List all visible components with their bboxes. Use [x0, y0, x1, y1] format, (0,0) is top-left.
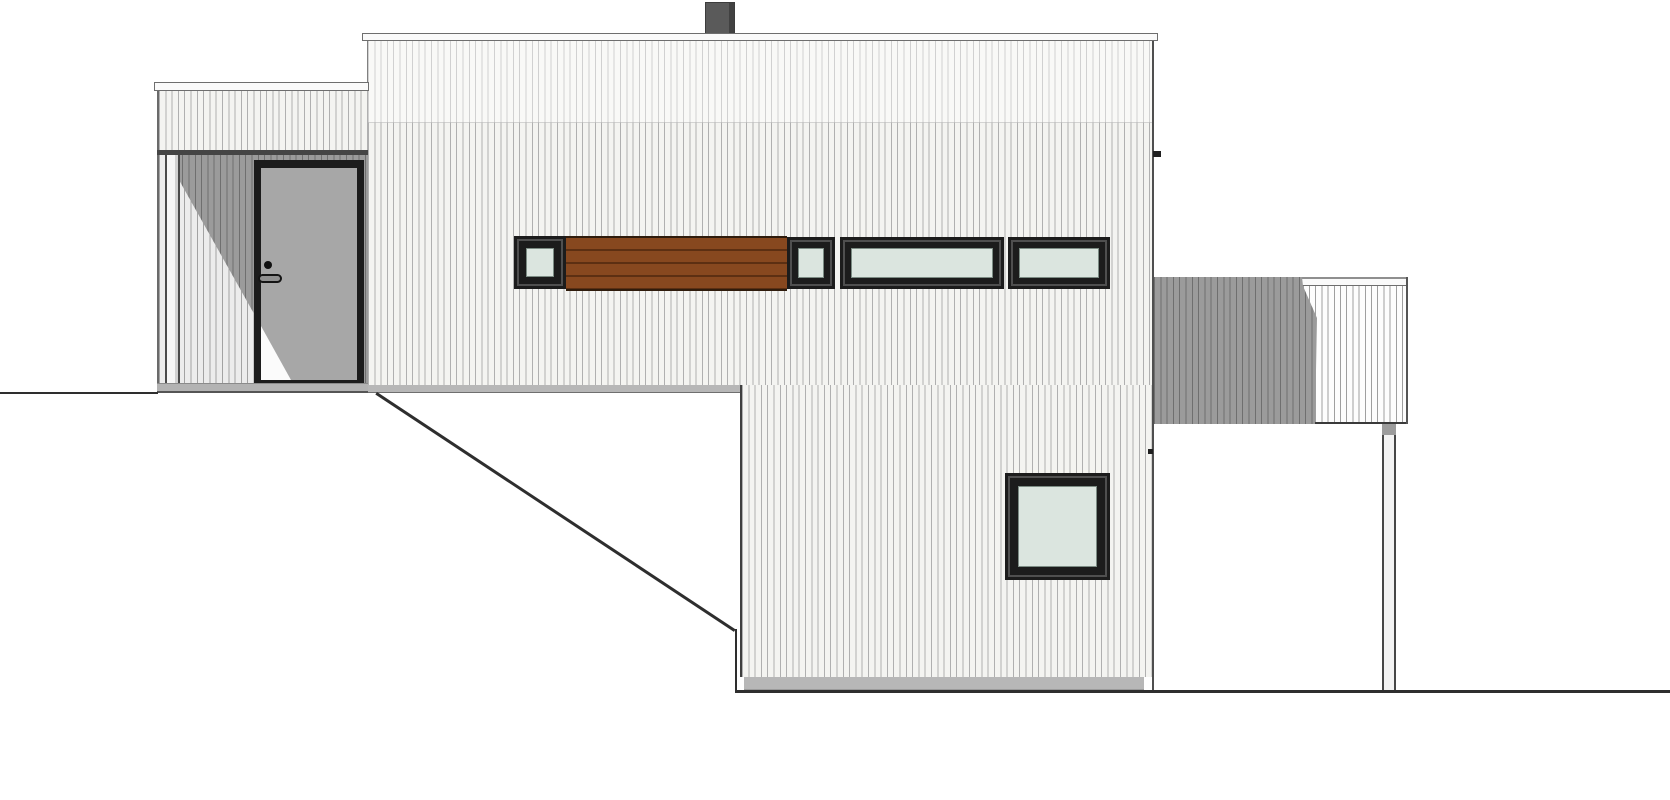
facade-base-strip	[367, 385, 741, 393]
edge-fixture-lower	[1148, 449, 1153, 454]
wood-slat-panel	[566, 236, 787, 291]
porch-header	[157, 150, 368, 155]
ground-line-left	[0, 392, 158, 394]
window-glass	[1018, 486, 1097, 567]
clerestory-window-1	[514, 236, 566, 289]
chimney	[705, 2, 735, 34]
window-glass	[1019, 248, 1099, 278]
railing-shadow	[1154, 277, 1319, 424]
roof-fascia	[362, 33, 1158, 41]
clerestory-window-2	[787, 237, 835, 289]
window-glass	[851, 248, 993, 278]
lower-base-strip	[744, 677, 1144, 690]
window-glass	[526, 248, 554, 277]
entry-door	[261, 168, 357, 380]
ground-line-right	[735, 690, 1670, 693]
deck-post-cap	[1382, 424, 1396, 435]
facade-light-band	[368, 41, 1153, 123]
edge-fixture-upper	[1153, 151, 1161, 157]
terrain-slope-line	[376, 392, 736, 631]
wing-fascia	[154, 82, 369, 91]
door-knob	[264, 261, 272, 269]
entry-wing-wall	[157, 91, 368, 152]
deck-post	[1382, 424, 1396, 692]
porch-post	[165, 155, 180, 385]
picture-window	[1005, 473, 1110, 580]
facade-right-edge	[1152, 41, 1154, 692]
porch-sill	[157, 383, 368, 393]
terrain-step-line	[735, 629, 738, 692]
window-glass	[798, 248, 824, 278]
elevation-drawing	[0, 0, 1670, 800]
door-handle	[258, 274, 282, 283]
ribbon-window-1	[840, 237, 1004, 289]
ribbon-window-2	[1008, 237, 1110, 289]
railing-end-edge	[1406, 277, 1408, 424]
